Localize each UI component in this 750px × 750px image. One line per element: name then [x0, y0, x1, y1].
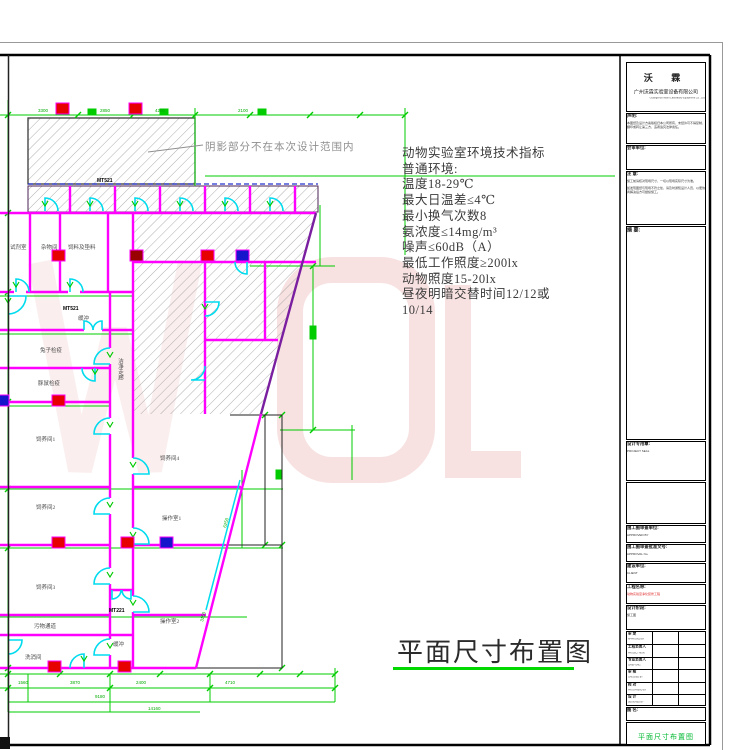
- room-label: 饲料及垫料: [68, 243, 96, 251]
- company-full-name: 广州沃霖实验室设备有限公司: [634, 88, 698, 95]
- equipment-marker: [129, 103, 142, 114]
- equipment-marker: [52, 537, 65, 548]
- signature-role-en: CHIEF ENG.: [628, 664, 652, 666]
- signature-row: 专业负责人CHIEF ENG.: [627, 657, 705, 669]
- room-label: 污物通道: [34, 622, 57, 630]
- signature-role-en: PROJECT MGR.: [628, 652, 652, 654]
- seal-empty-box: [626, 482, 706, 524]
- spec-line: 动物照度15-20lx: [402, 272, 617, 288]
- door-code-label: MT521: [63, 306, 79, 312]
- signature-row: 审 核CHECKED BY: [627, 669, 705, 681]
- equipment-marker: [56, 103, 69, 114]
- seal-label: 设计专用章:: [627, 442, 704, 448]
- dimension-label: 4710: [225, 680, 236, 685]
- signature-cell-empty: [679, 683, 705, 694]
- notice-label: 注 意:: [627, 172, 704, 178]
- statement-text: 本图纸及设计方案版权归本公司所有，未经许可不得复制、翻印或转让第三方，违者追究法…: [627, 122, 705, 130]
- notice-box: 注 意: 施工前请核对现场尺寸，一切以现场实际尺寸为准。 如发现图纸与现场不符之…: [626, 171, 706, 225]
- drawing-title-underline: [393, 667, 574, 670]
- equipment-marker: [201, 250, 214, 261]
- signature-role-cn: 审 核: [628, 670, 652, 674]
- approval-no-label: 施工图审查批准文号:: [627, 545, 704, 551]
- project-box: 工程名称: 动物实验室净化装修工程: [626, 584, 706, 604]
- client-en: CLIENT: [627, 572, 705, 576]
- signature-row: 工程负责人PROJECT MGR.: [627, 644, 705, 656]
- signature-cell-empty: [679, 632, 705, 644]
- scope-note: 阴影部分不在本次设计范围内: [205, 139, 355, 154]
- statement-label: 声明:: [627, 114, 704, 120]
- drawing-name-box: 平面尺寸布置图: [626, 722, 706, 745]
- seal-label-en: PROJECT SEAL: [627, 450, 705, 454]
- signature-row: 校 对PROOFREAD BY: [627, 682, 705, 694]
- spec-line: 温度18-29℃: [402, 177, 617, 193]
- room-label: 洗消间: [25, 653, 42, 661]
- dimension-lines-black: [196, 415, 282, 668]
- signature-role-en: APPROVED BY: [628, 638, 652, 640]
- dimension-label: 2100: [238, 108, 249, 113]
- door-code-label: MT221: [109, 608, 125, 614]
- stage-box: 设计阶段: 施工图: [626, 605, 706, 630]
- review-unit-box: 施工图审查单位: APPROVED BY: [626, 525, 706, 543]
- project-label: 工程名称:: [627, 585, 704, 591]
- spec-line: 最小换气次数8: [402, 209, 617, 225]
- equipment-marker: [52, 395, 65, 406]
- signature-role-cn: 设 计: [628, 695, 652, 699]
- signature-row: 审 定APPROVED BY: [627, 632, 705, 644]
- signature-cell-empty: [653, 658, 679, 669]
- equipment-marker: [160, 537, 173, 548]
- room-label: 操作室2: [160, 617, 180, 625]
- dimension-label: 2850: [100, 108, 111, 113]
- equipment-marker: [236, 250, 249, 261]
- room-label: 饲养间2: [36, 503, 56, 511]
- company-logo-text: 沃 霖: [627, 71, 705, 84]
- signature-cell-empty: [679, 670, 705, 681]
- joint-review-box: 会审单位:: [626, 145, 706, 170]
- dimension-label: 1560: [18, 680, 29, 685]
- project-name-value: 动物实验室净化装修工程: [627, 593, 705, 597]
- client-label: 建设单位:: [627, 564, 704, 570]
- spec-text-block: 动物实验室环境技术指标普通环境:温度18-29℃最大日温差≤4℃最小换气次数8氨…: [402, 146, 617, 319]
- room-label: 饲养间3: [36, 583, 56, 591]
- signature-cell-empty: [679, 645, 705, 656]
- abstract-box: 摘 要:: [626, 226, 706, 440]
- room-label: 试剂室: [10, 243, 27, 251]
- spec-line: 动物实验室环境技术指标: [402, 146, 617, 162]
- equipment-marker: [48, 661, 61, 672]
- notice-text-2: 如发现图纸与现场不符之处，请及时通知设计人员，以便协商解决后方可继续施工。: [627, 187, 705, 195]
- review-unit-label: 施工图审查单位:: [627, 526, 704, 532]
- client-box: 建设单位: CLIENT: [626, 563, 706, 583]
- dimension-label: 2400: [136, 680, 147, 685]
- dimension-label: 3870: [70, 680, 81, 685]
- spec-line: 普通环境:: [402, 162, 617, 178]
- room-label: 饲养间4: [160, 454, 180, 462]
- drawing-title: 平面尺寸布置图: [397, 632, 593, 669]
- equipment-marker: [52, 250, 65, 261]
- dimension-label: 3300: [38, 108, 49, 113]
- signature-role-cn: 审 定: [628, 632, 652, 636]
- signature-cell-empty: [653, 645, 679, 656]
- equipment-marker: [118, 661, 131, 672]
- signature-role-cn: 工程负责人: [628, 645, 652, 649]
- spec-line: 昼夜明暗交替时间12/12或: [402, 287, 617, 303]
- equipment-marker: [130, 250, 143, 261]
- seal-box: 设计专用章: PROJECT SEAL: [626, 441, 706, 481]
- signature-cell-empty: [653, 632, 679, 644]
- statement-box: 声明: 本图纸及设计方案版权归本公司所有，未经许可不得复制、翻印或转让第三方，违…: [626, 113, 706, 144]
- signature-cell-empty: [653, 695, 679, 706]
- equipment-marker: [121, 537, 134, 548]
- stage-label: 设计阶段:: [627, 606, 704, 612]
- spec-line: 10/14: [402, 303, 617, 319]
- review-unit-en: APPROVED BY: [627, 534, 705, 538]
- equipment-marker: [0, 395, 9, 406]
- dimension-label: 14160: [148, 706, 161, 711]
- signature-role-en: CHECKED BY: [628, 676, 652, 678]
- signature-cell-empty: [679, 695, 705, 706]
- signature-role-en: PROOFREAD BY: [628, 689, 652, 691]
- cad-drawing-page: 试剂室杂物间饲料及垫料缓冲兔子检疫豚鼠检疫饲养间1饲养间2饲养间3污物通道洗消间…: [0, 0, 750, 750]
- room-label: 豚鼠检疫: [38, 379, 61, 387]
- signature-role-cn: 校 对: [628, 683, 652, 687]
- spec-line: 噪声≤60dB（A）: [402, 240, 617, 256]
- drawing-name-value: 平面尺寸布置图: [627, 732, 705, 742]
- approval-no-box: 施工图审查批准文号: APPROVAL No.: [626, 544, 706, 562]
- signature-cell-empty: [653, 670, 679, 681]
- spec-line: 最大日温差≤4℃: [402, 193, 617, 209]
- company-box: 沃 霖 广州沃霖实验室设备有限公司 Guangzhou Wolin Labora…: [626, 62, 706, 112]
- room-label: 缓冲: [113, 640, 125, 648]
- signature-cell-empty: [653, 683, 679, 694]
- room-label: 饲养间1: [36, 435, 56, 443]
- door-code-label: MT521: [97, 178, 113, 184]
- dimension-label: 4200: [155, 108, 166, 113]
- room-label: 杂物间: [41, 243, 58, 251]
- notice-text-1: 施工前请核对现场尺寸，一切以现场实际尺寸为准。: [627, 180, 705, 184]
- signature-row: 设 计DESIGNED BY: [627, 694, 705, 706]
- signature-role-cn: 专业负责人: [628, 658, 652, 662]
- abstract-label: 摘 要:: [627, 227, 704, 234]
- stage-value: 施工图: [627, 614, 705, 618]
- spec-line: 氨浓度≤14mg/m³: [402, 225, 617, 241]
- corridor-label: 洁净走廊: [117, 357, 124, 382]
- room-label: 兔子检疫: [40, 346, 63, 354]
- drawing-name-label-box: 图 名:: [626, 707, 706, 721]
- drawing-name-label: 图 名:: [627, 708, 704, 714]
- signature-table: 审 定APPROVED BY工程负责人PROJECT MGR.专业负责人CHIE…: [626, 631, 706, 706]
- joint-review-label: 会审单位:: [627, 146, 704, 152]
- room-label: 操作室1: [162, 514, 182, 522]
- approval-no-en: APPROVAL No.: [627, 553, 705, 557]
- dimension-label: 9180: [95, 694, 106, 699]
- signature-role-en: DESIGNED BY: [628, 701, 652, 703]
- signature-cell-empty: [679, 658, 705, 669]
- spec-line: 最低工作照度≥200lx: [402, 256, 617, 272]
- room-label: 缓冲: [78, 314, 90, 322]
- company-name-en: Guangzhou Wolin Laboratory Equipment Co.…: [650, 97, 683, 100]
